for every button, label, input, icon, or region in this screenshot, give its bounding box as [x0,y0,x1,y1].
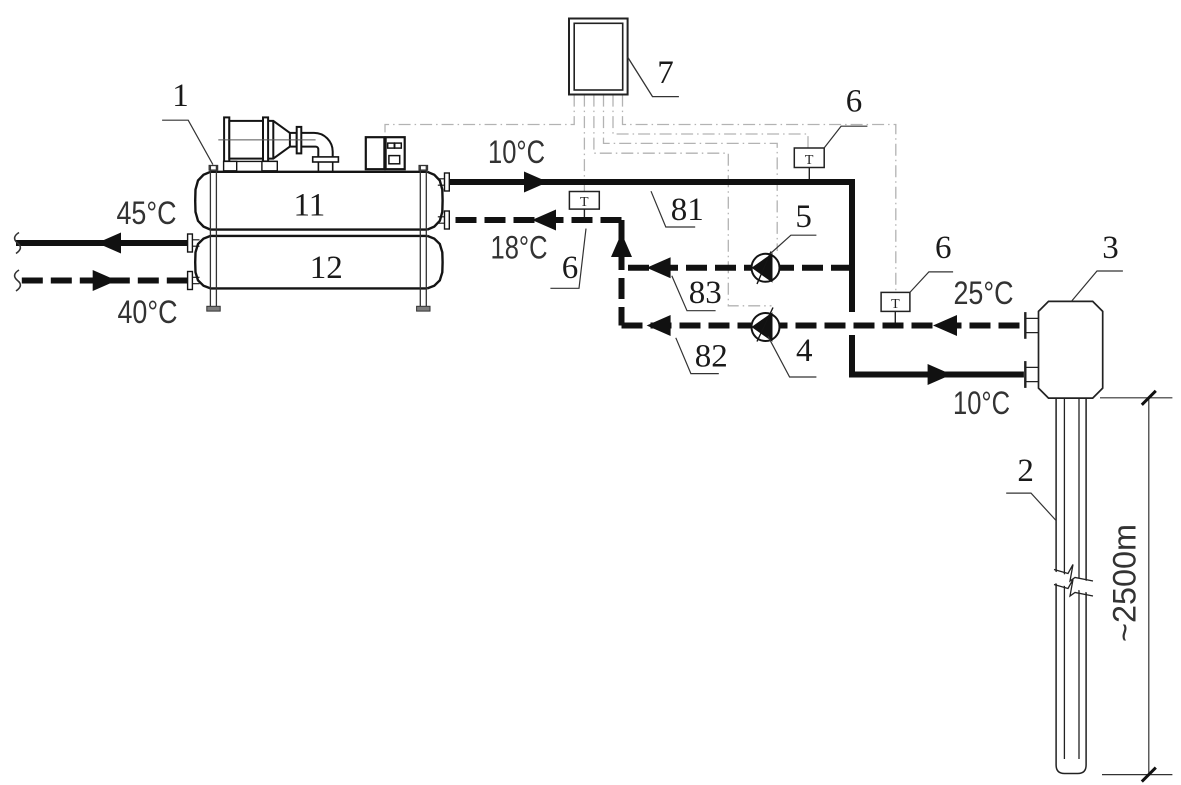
svg-text:~2500m: ~2500m [1107,524,1143,642]
svg-text:82: 82 [695,339,728,375]
svg-text:2: 2 [1017,453,1034,489]
svg-text:1: 1 [172,78,189,114]
svg-text:3: 3 [1102,230,1119,266]
svg-text:T: T [805,153,814,168]
svg-text:T: T [580,195,589,210]
svg-text:5: 5 [795,199,812,235]
svg-text:T: T [891,297,900,312]
svg-text:10°C: 10°C [953,385,1010,421]
svg-text:81: 81 [671,192,704,228]
svg-text:6: 6 [846,84,863,120]
svg-text:12: 12 [310,250,343,286]
svg-text:6: 6 [935,230,952,266]
svg-text:10°C: 10°C [488,134,545,170]
svg-text:40°C: 40°C [118,294,178,330]
svg-text:6: 6 [562,250,579,286]
svg-text:7: 7 [657,55,674,91]
svg-text:18°C: 18°C [491,230,548,266]
svg-text:4: 4 [796,333,813,369]
svg-text:25°C: 25°C [954,275,1014,311]
svg-text:83: 83 [689,275,722,311]
svg-text:11: 11 [294,188,326,224]
svg-text:45°C: 45°C [117,195,177,231]
